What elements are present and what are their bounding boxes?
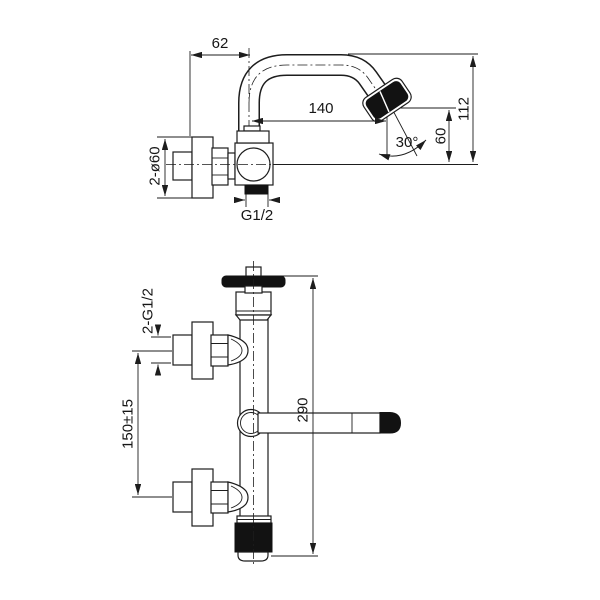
outlet-thread xyxy=(245,185,268,194)
adapter xyxy=(228,153,235,179)
top-view: 62 140 60 112 2-ø60 30° G1/2 xyxy=(147,35,479,224)
tub-spout-tube xyxy=(258,413,380,433)
lower-flange xyxy=(192,469,213,526)
dim-label-60: 60 xyxy=(433,128,450,145)
dim-label-140: 140 xyxy=(308,100,333,117)
dim-label-290: 290 xyxy=(295,397,312,422)
lower-hex-nut xyxy=(211,482,228,513)
upper-hex-nut xyxy=(211,335,228,366)
wall-square-fitting xyxy=(173,152,192,180)
tub-spout-end-cap xyxy=(380,413,401,434)
upper-flange xyxy=(192,322,213,379)
dim-label-62: 62 xyxy=(212,35,229,52)
front-view: 290 150±15 2-G1/2 xyxy=(120,261,401,567)
bottom-cap-tip xyxy=(238,552,268,561)
dim-label-2xg12: 2-G1/2 xyxy=(140,288,157,334)
hex-nut xyxy=(212,148,228,185)
dim-label-g12: G1/2 xyxy=(241,207,274,224)
spout-collar-notch xyxy=(244,126,260,131)
lower-square-fitting xyxy=(173,482,192,512)
dim-label-150: 150±15 xyxy=(120,399,137,449)
wall-flange xyxy=(192,137,213,198)
dim-label-30deg: 30° xyxy=(396,134,419,151)
dim-label-2xd60: 2-ø60 xyxy=(147,146,164,185)
technical-drawing-page: 62 140 60 112 2-ø60 30° G1/2 xyxy=(0,0,600,600)
dim-label-112: 112 xyxy=(456,97,473,121)
upper-square-fitting xyxy=(173,335,192,365)
spout-collar xyxy=(237,131,269,143)
faucet-dimension-drawing: 62 140 60 112 2-ø60 30° G1/2 xyxy=(0,0,600,600)
